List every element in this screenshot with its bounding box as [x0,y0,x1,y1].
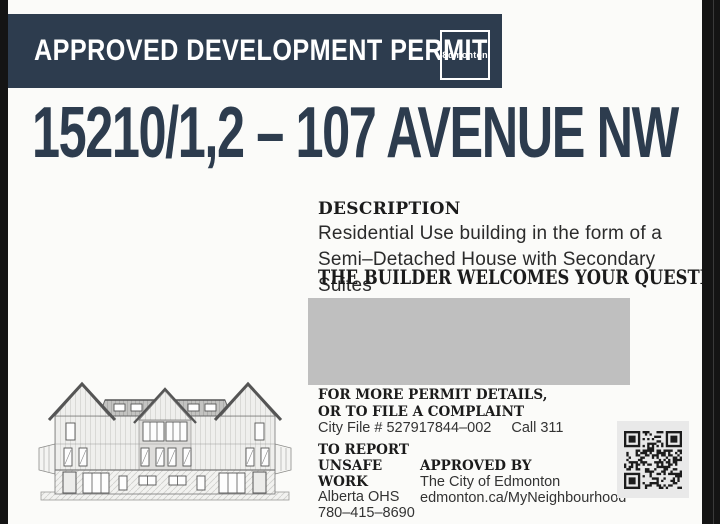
header-bar: APPROVED DEVELOPMENT PERMIT Ɛdmonton [8,14,502,88]
report-phone: 780–415–8690 [318,506,418,522]
approved-by-column: APPROVED BY The City of Edmonton edmonto… [420,459,626,506]
qr-code-icon [624,431,682,489]
permit-details-line-2: OR TO FILE A COMPLAINT [318,404,547,421]
unsafe-work-column: TO REPORT UNSAFE WORK Alberta OHS 780–41… [318,443,418,522]
builder-contact-redacted-box [308,298,630,385]
qr-panel [617,421,689,498]
city-file-row: City File # 527917844–002 Call 311 [318,420,563,436]
call-311-note: Call 311 [511,420,563,436]
photo-frame: APPROVED DEVELOPMENT PERMIT Ɛdmonton 152… [0,0,720,524]
edmonton-logo-icon: Ɛdmonton [440,30,490,80]
permit-details-heading: FOR MORE PERMIT DETAILS, OR TO FILE A CO… [318,387,547,420]
permit-details-line-1: FOR MORE PERMIT DETAILS, [318,387,547,404]
photo-left-edge [0,0,8,524]
to-report-heading: TO REPORT [318,443,418,459]
approved-url: edmonton.ca/MyNeighbourhood [420,491,626,507]
edmonton-logo-label: Ɛdmonton [442,50,488,60]
city-file-number: City File # 527917844–002 [318,420,491,436]
approved-by-heading: APPROVED BY [420,459,626,475]
report-org: Alberta OHS [318,490,418,506]
building-elevation-drawing [35,376,295,506]
photo-right-edge [702,0,720,524]
unsafe-work-heading: UNSAFE WORK [318,459,418,491]
approved-org: The City of Edmonton [420,475,626,491]
permit-sign: APPROVED DEVELOPMENT PERMIT Ɛdmonton 152… [8,0,702,524]
description-heading: DESCRIPTION [318,199,461,219]
site-address: 15210/1,2 – 107 AVENUE NW [32,97,678,169]
builder-questions-heading: THE BUILDER WELCOMES YOUR QUESTIONS: [318,266,720,289]
description-line-1: Residential Use building in the form of … [318,221,702,247]
header-title: APPROVED DEVELOPMENT PERMIT [34,34,488,68]
